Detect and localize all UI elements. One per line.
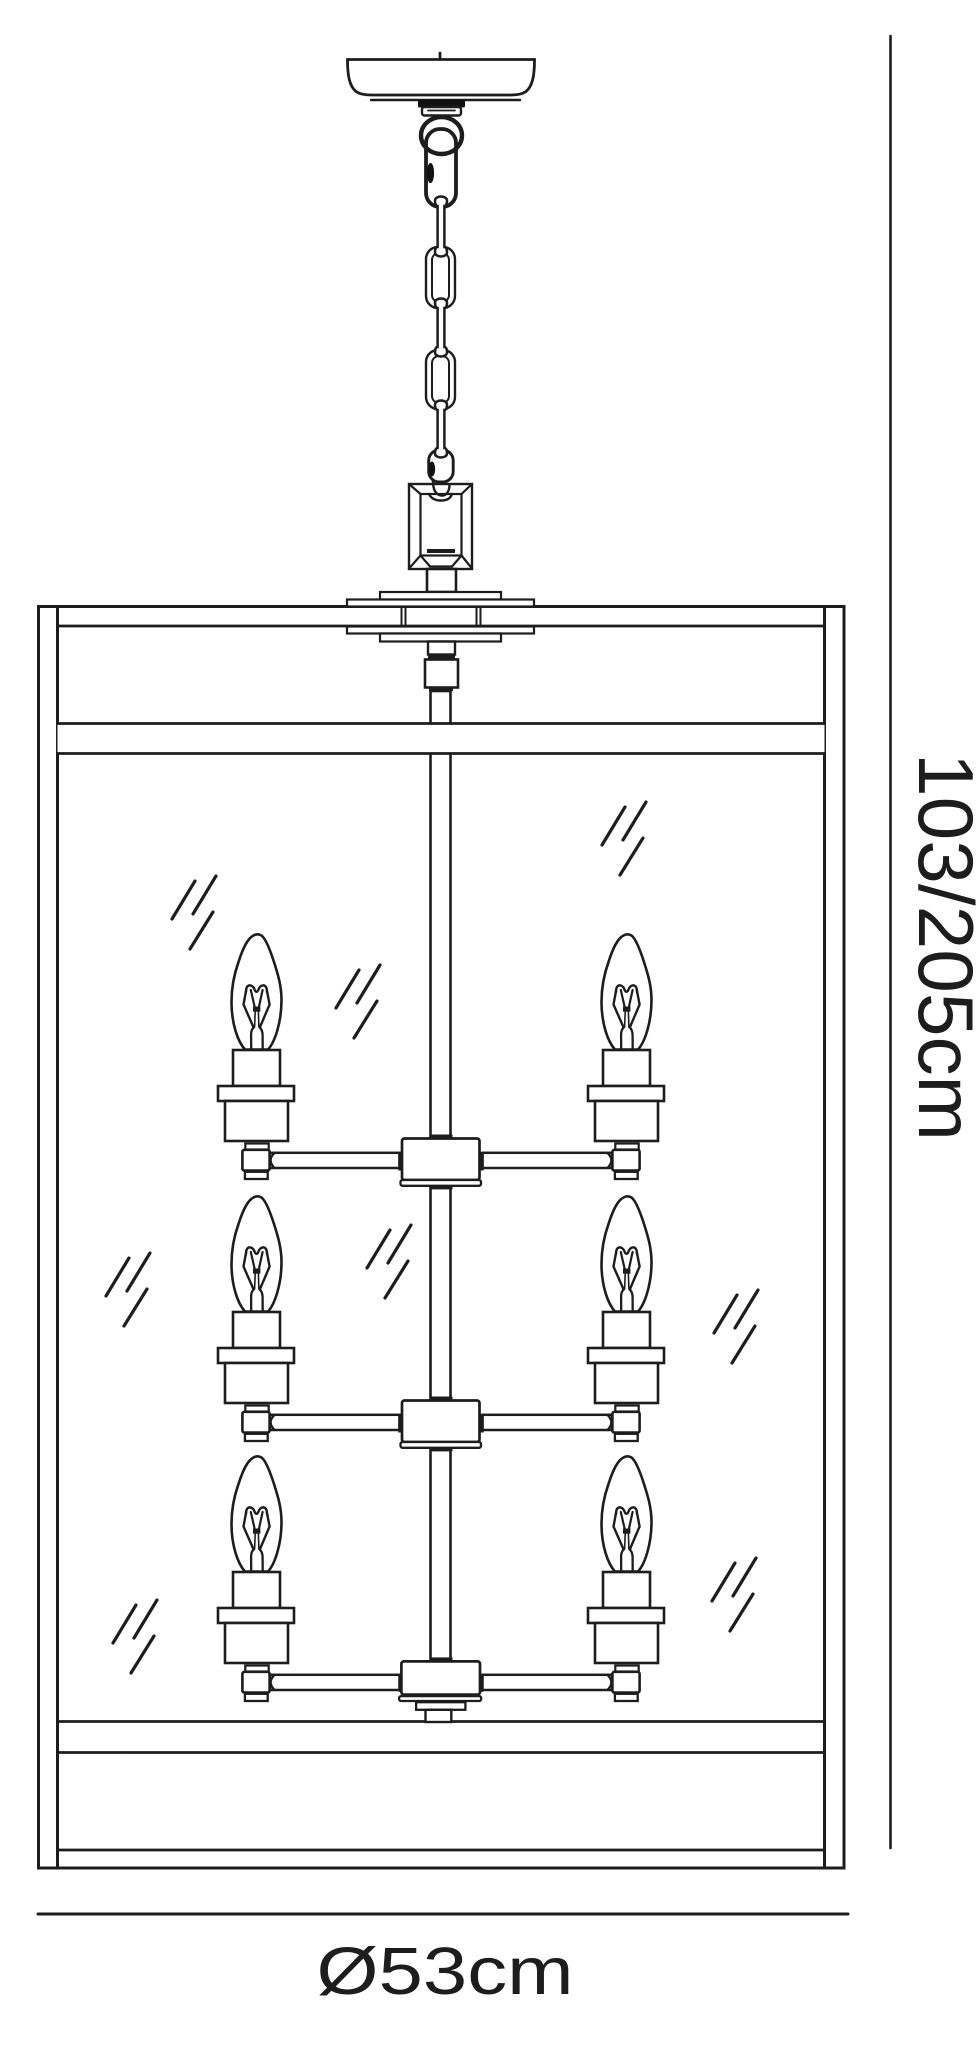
svg-text:Ø53cm: Ø53cm [317, 1934, 574, 2009]
svg-text:103/205cm: 103/205cm [902, 753, 980, 1141]
